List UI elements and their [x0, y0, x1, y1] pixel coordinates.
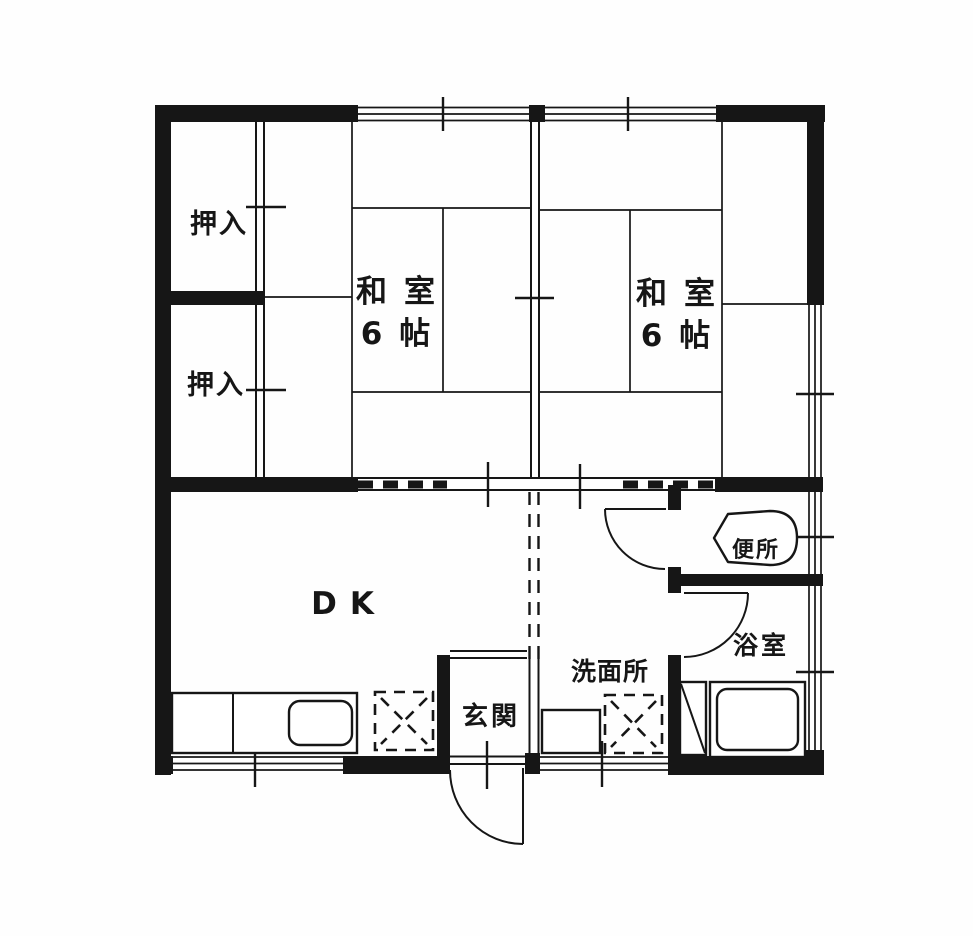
washbasin — [542, 710, 600, 753]
interior-lines — [171, 122, 823, 770]
washitsu-right-size: 6帖 — [641, 318, 728, 354]
genkan-label: 玄関 — [462, 701, 520, 732]
washitsu-left-size: 6帖 — [361, 316, 448, 352]
washroom-label: 洗面所 — [571, 657, 649, 686]
kitchen-appliance-space — [375, 692, 433, 750]
closet-upper-label: 押入 — [190, 209, 248, 240]
floor-plan-drawing: 押入 押入 和室 6帖 和室 6帖 DK 玄関 洗面所 浴室 便所 — [0, 0, 973, 936]
toilet-label: 便所 — [732, 538, 780, 563]
kitchen-counter — [172, 693, 357, 753]
floor-plan-page: 押入 押入 和室 6帖 和室 6帖 DK 玄関 洗面所 浴室 便所 — [0, 0, 973, 936]
bath-heater — [680, 682, 706, 755]
kitchen-sink — [289, 701, 352, 745]
bathroom-label: 浴室 — [733, 631, 789, 660]
bathtub — [710, 682, 805, 757]
laundry-space — [605, 695, 662, 753]
closet-lower-label: 押入 — [187, 370, 245, 401]
dk-label: DK — [311, 586, 387, 622]
washitsu-left-label: 和室 — [356, 274, 452, 310]
washitsu-right-label: 和室 — [636, 276, 732, 312]
toilet-door — [605, 509, 666, 569]
